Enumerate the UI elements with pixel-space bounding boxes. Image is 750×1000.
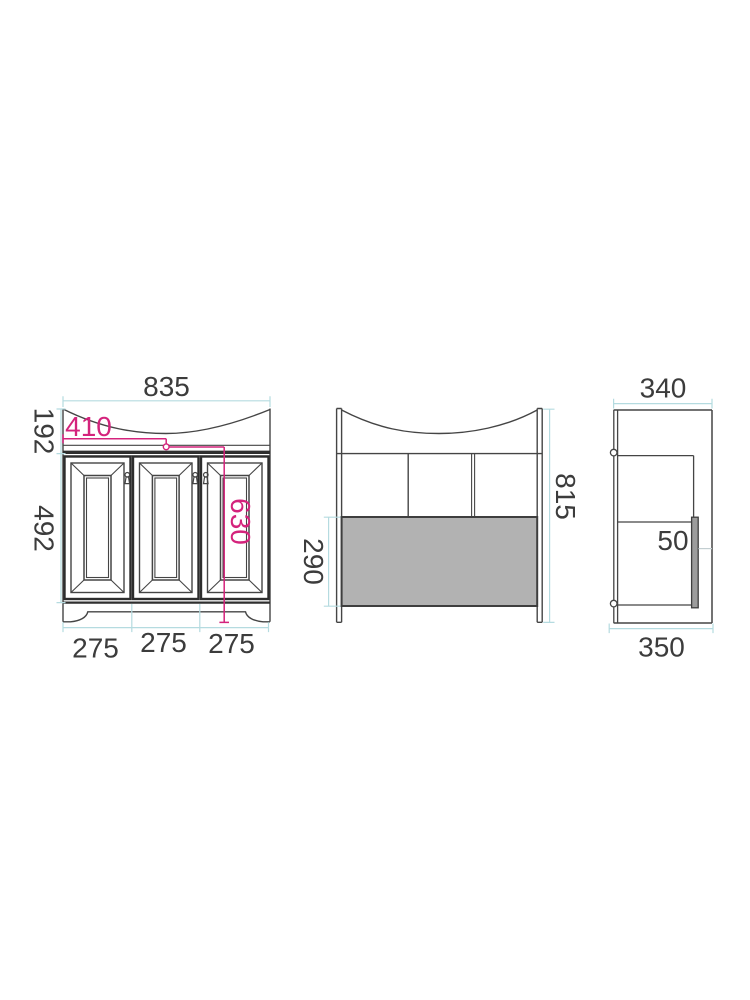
front-top-height-label: 192 xyxy=(29,408,60,455)
door-left xyxy=(65,457,131,600)
door-width-label-1: 275 xyxy=(72,633,119,664)
overall-height-label: 815 xyxy=(550,473,581,520)
drawing-canvas: 835 192 492 410 630 275 275 275 290 815 … xyxy=(0,0,750,1000)
back-lower-panel xyxy=(342,517,538,606)
back-basin-curve xyxy=(342,410,538,434)
door-width-label-3: 275 xyxy=(208,628,255,659)
keyhole-handle-icon xyxy=(204,473,209,484)
front-width-label: 835 xyxy=(143,371,190,402)
vanity-dimension-drawing: 835 192 492 410 630 275 275 275 290 815 … xyxy=(0,0,750,1000)
door-middle xyxy=(133,457,199,600)
door-width-label-2: 275 xyxy=(140,627,187,658)
side-gap-label: 50 xyxy=(657,525,688,556)
back-view xyxy=(337,409,543,623)
basin-offset-label: 410 xyxy=(65,411,112,442)
side-top-depth-label: 340 xyxy=(640,373,687,404)
hinge-icon xyxy=(610,449,617,456)
plinth-arch xyxy=(63,612,270,622)
keyhole-handle-icon xyxy=(193,473,198,484)
side-door-panel xyxy=(614,410,618,623)
height-630-label: 630 xyxy=(225,498,256,545)
hinge-icon xyxy=(610,600,617,607)
back-panel-height-label: 290 xyxy=(298,538,329,585)
side-back-panel-strip xyxy=(692,517,699,608)
back-divider-2 xyxy=(472,454,475,517)
keyhole-handle-icon xyxy=(125,473,130,484)
basin-drain-marker xyxy=(163,444,169,450)
front-door-height-label: 492 xyxy=(29,505,60,552)
side-view xyxy=(610,410,712,623)
side-bottom-depth-label: 350 xyxy=(638,632,685,663)
